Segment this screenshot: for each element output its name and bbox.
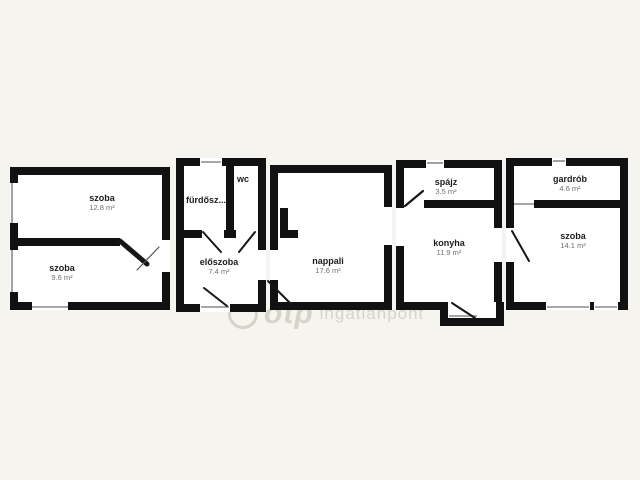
room-name: nappali	[312, 256, 344, 266]
room-label-eloszoba: előszoba 7.4 m²	[200, 257, 239, 276]
room-name: fürdősz...	[186, 195, 226, 205]
room-area: 3.5 m²	[435, 187, 458, 196]
floorplan-image: otp ingatlanpont	[0, 0, 640, 480]
room-label-spajz: spájz 3.5 m²	[435, 177, 458, 196]
room-label-wc: wc	[237, 174, 249, 184]
room-label-konyha: konyha 11.9 m²	[433, 238, 465, 257]
room-label-szoba-3: szoba 14.1 m²	[560, 231, 586, 250]
room-label-szoba-1: szoba 12.8 m²	[89, 193, 115, 212]
room-name: szoba	[89, 193, 115, 203]
room-area: 4.6 m²	[553, 184, 587, 193]
room-area: 12.8 m²	[89, 203, 115, 212]
room-name: szoba	[560, 231, 586, 241]
room-name: gardrób	[553, 174, 587, 184]
room-area: 11.9 m²	[433, 248, 465, 257]
room-label-furdoszoba: fürdősz...	[186, 195, 226, 205]
room-label-gardrob: gardrób 4.6 m²	[553, 174, 587, 193]
room-name: előszoba	[200, 257, 239, 267]
room-area: 17.6 m²	[312, 266, 344, 275]
room-name: konyha	[433, 238, 465, 248]
room-name: wc	[237, 174, 249, 184]
room-name: szoba	[49, 263, 75, 273]
floorplan-svg	[0, 0, 640, 480]
room-label-szoba-2: szoba 9.6 m²	[49, 263, 75, 282]
room-area: 7.4 m²	[200, 267, 239, 276]
room-area: 14.1 m²	[560, 241, 586, 250]
room-name: spájz	[435, 177, 458, 187]
room-area: 9.6 m²	[49, 273, 75, 282]
room-label-nappali: nappali 17.6 m²	[312, 256, 344, 275]
